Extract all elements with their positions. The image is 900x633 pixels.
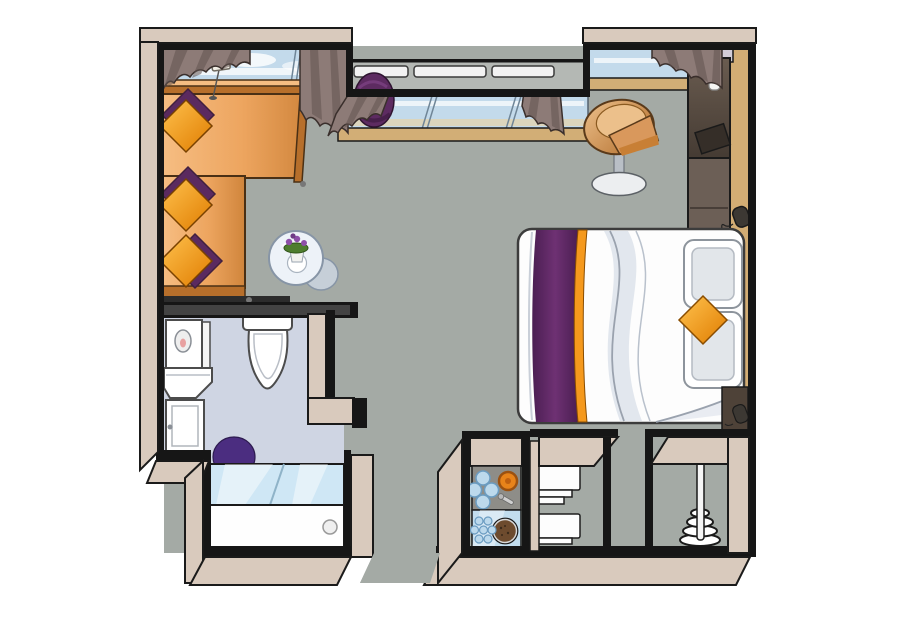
bathtub: Bathtub with glass screen (209, 464, 344, 548)
headboard-cushions: Headboard cushions with orange pillow (679, 240, 742, 388)
entrance-opening: Entrance opening (360, 553, 440, 583)
floor-plan-page: Hotel suite floor plan French balcony ra… (0, 0, 900, 633)
kitchenette: Kitchenette with hob and sink (468, 438, 523, 548)
washbasin-mirror: Washbasin with mirror cabinet (164, 320, 212, 398)
vanity-cabinet: Vanity cabinet (166, 400, 204, 452)
floor-plan: Hotel suite floor plan French balcony ra… (0, 0, 900, 633)
nightstand: Bedside cabinet (722, 387, 750, 430)
